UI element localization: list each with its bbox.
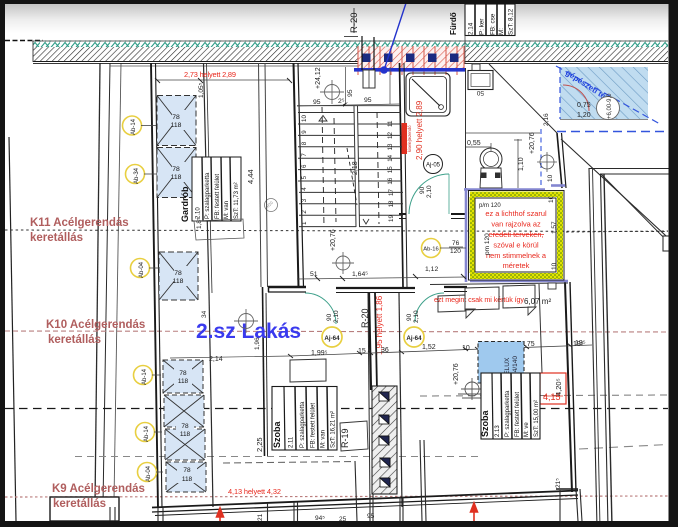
svg-text:4: 4 (301, 187, 308, 191)
svg-text:2,10: 2,10 (426, 185, 433, 198)
svg-text:90: 90 (406, 313, 413, 321)
svg-text:FB: festett felület: FB: festett felület (215, 174, 221, 219)
svg-text:Ab-34: Ab-34 (134, 167, 140, 184)
svg-text:FB: festett felület: FB: festett felület (515, 392, 521, 437)
svg-text:2.14: 2.14 (468, 22, 475, 35)
svg-text:Fürdő: Fürdő (449, 12, 458, 35)
svg-text:keretállás: keretállás (53, 498, 106, 510)
svg-text:Aj-64: Aj-64 (406, 335, 422, 342)
svg-text:34: 34 (201, 310, 208, 318)
svg-text:19⁵: 19⁵ (573, 341, 584, 348)
svg-text:+24,12: +24,12 (315, 67, 322, 89)
svg-text:1: 1 (301, 221, 308, 225)
svg-text:Szoba: Szoba (480, 410, 490, 437)
svg-text:keretállás: keretállás (48, 334, 101, 346)
svg-text:4,13 helyett 4,32: 4,13 helyett 4,32 (228, 487, 281, 496)
svg-text:2,73 helyett 2,89: 2,73 helyett 2,89 (184, 70, 236, 79)
svg-text:4,44: 4,44 (246, 169, 255, 184)
svg-text:118: 118 (173, 278, 184, 285)
svg-text:2,10: 2,10 (333, 310, 340, 323)
svg-text:Aj-05: Aj-05 (426, 163, 441, 169)
svg-text:1,05⁵: 1,05⁵ (198, 82, 205, 98)
svg-text:2.10: 2.10 (196, 207, 202, 219)
svg-text:18: 18 (388, 200, 395, 207)
svg-text:ez a lichthof szarul: ez a lichthof szarul (485, 209, 547, 218)
svg-text:11: 11 (387, 120, 394, 127)
svg-text:+20,76: +20,76 (529, 132, 536, 154)
svg-text:szóval e körül: szóval e körül (493, 241, 539, 250)
svg-text:2,90 helyett 2,89: 2,90 helyett 2,89 (415, 100, 424, 160)
svg-text:R-20: R-20 (349, 12, 360, 33)
svg-text:120: 120 (450, 248, 461, 255)
svg-text:p/m 120: p/m 120 (479, 203, 501, 209)
svg-text:2,16: 2,16 (543, 113, 550, 126)
svg-text:78: 78 (174, 270, 182, 277)
svg-text:2.11: 2.11 (289, 436, 295, 448)
svg-text:15: 15 (358, 348, 366, 355)
svg-text:SzT: 15,00 m²: SzT: 15,00 m² (534, 400, 540, 437)
svg-text:P: szalagparketta: P: szalagparketta (300, 401, 306, 448)
svg-text:6,07 m²: 6,07 m² (524, 297, 551, 306)
svg-text:90: 90 (326, 313, 333, 321)
svg-text:118: 118 (182, 476, 193, 483)
svg-text:90: 90 (419, 186, 426, 194)
svg-text:1,12: 1,12 (425, 266, 438, 273)
svg-text:10: 10 (547, 174, 554, 182)
svg-text:ezt megint csak mi kértük így: ezt megint csak mi kértük így (434, 295, 524, 304)
svg-text:12: 12 (387, 132, 394, 139)
svg-text:95: 95 (347, 89, 354, 97)
svg-text:118: 118 (171, 122, 182, 129)
svg-text:P: szalagparketta: P: szalagparketta (205, 172, 211, 219)
svg-text:SzT: 8,12: SzT: 8,12 (508, 8, 515, 35)
svg-text:1,64⁵: 1,64⁵ (352, 271, 368, 278)
svg-text:Ab-14: Ab-14 (142, 368, 148, 385)
svg-text:8: 8 (301, 141, 308, 145)
svg-text:M: van: M: van (321, 430, 327, 448)
svg-text:Aj-64: Aj-64 (324, 335, 340, 342)
svg-text:2⁵: 2⁵ (338, 98, 345, 105)
svg-text:36: 36 (381, 347, 389, 354)
svg-text:K10 Acélgerendás: K10 Acélgerendás (46, 319, 145, 331)
svg-text:50: 50 (476, 89, 484, 96)
svg-text:Ab-04: Ab-04 (139, 261, 145, 278)
svg-text:+20,76: +20,76 (330, 229, 337, 251)
svg-text:Ab-04: Ab-04 (146, 465, 152, 482)
svg-text:1,8⁵: 1,8⁵ (196, 217, 203, 229)
svg-text:15: 15 (387, 166, 394, 173)
svg-text:M:: M: (498, 28, 505, 35)
svg-text:R-19: R-19 (340, 428, 350, 448)
svg-text:3: 3 (301, 198, 308, 202)
svg-text:2.13: 2.13 (495, 425, 501, 437)
svg-text:118: 118 (171, 174, 182, 181)
svg-text:1,99⁵: 1,99⁵ (311, 350, 328, 357)
svg-text:78: 78 (172, 114, 180, 121)
svg-text:P: szalagparketta: P: szalagparketta (505, 390, 511, 437)
svg-text:pm 120: pm 120 (484, 233, 491, 255)
svg-text:78: 78 (181, 423, 189, 430)
svg-text:K9 Acélgerendás: K9 Acélgerendás (52, 483, 145, 495)
svg-text:51: 51 (310, 271, 318, 278)
svg-text:méretek: méretek (503, 261, 530, 270)
svg-text:14: 14 (387, 154, 394, 161)
svg-text:95: 95 (313, 99, 321, 106)
svg-text:M: ve: M: ve (524, 422, 530, 437)
svg-text:SzT: 16,21 m²: SzT: 16,21 m² (331, 411, 337, 448)
svg-text:0,55: 0,55 (467, 140, 481, 147)
svg-text:Ab-14: Ab-14 (144, 425, 150, 442)
svg-text:2.sz Lakás: 2.sz Lakás (196, 320, 301, 343)
svg-text:10: 10 (301, 115, 308, 122)
svg-text:2,25: 2,25 (255, 437, 264, 452)
svg-text:+20,76: +20,76 (453, 363, 460, 385)
svg-text:1,20: 1,20 (577, 112, 591, 119)
svg-text:21⁵: 21⁵ (555, 478, 562, 488)
svg-text:78: 78 (183, 467, 191, 474)
svg-text:Ab-16: Ab-16 (423, 247, 438, 253)
svg-text:Gardrób: Gardrób (180, 186, 190, 222)
svg-text:van rajzolva az: van rajzolva az (491, 220, 541, 229)
svg-text:2,18: 2,18 (352, 161, 359, 175)
svg-text:SzT: 11,73 m²: SzT: 11,73 m² (234, 182, 240, 219)
svg-text:1,52: 1,52 (422, 344, 436, 351)
svg-text:Ab-14: Ab-14 (131, 118, 137, 135)
svg-text:nem stimmelnek a: nem stimmelnek a (486, 251, 547, 260)
svg-text:1,10: 1,10 (518, 157, 525, 171)
svg-text:118: 118 (178, 378, 189, 385)
svg-text:P: ker: P: ker (479, 19, 486, 35)
svg-text:10: 10 (462, 345, 470, 352)
svg-text:+6,00-9,0: +6,00-9,0 (607, 93, 613, 119)
svg-text:Szoba: Szoba (272, 421, 282, 448)
svg-text:1,96: 1,96 (254, 337, 261, 350)
svg-text:10: 10 (551, 262, 558, 270)
svg-text:21: 21 (257, 513, 264, 521)
svg-text:FB: festett felület: FB: festett felület (311, 403, 317, 448)
svg-text:2: 2 (301, 210, 308, 214)
svg-text:6: 6 (301, 164, 308, 168)
svg-text:78: 78 (179, 370, 187, 377)
svg-text:17: 17 (388, 189, 395, 196)
svg-text:5: 5 (301, 175, 308, 179)
svg-text:94⁵: 94⁵ (315, 515, 325, 522)
svg-text:13: 13 (387, 143, 394, 150)
svg-text:95: 95 (367, 513, 375, 520)
svg-text:2,10: 2,10 (413, 310, 420, 323)
svg-text:78: 78 (172, 166, 180, 173)
svg-text:4,20⁵: 4,20⁵ (554, 378, 563, 396)
svg-text:FB: cse: FB: cse (490, 13, 497, 35)
svg-text:76: 76 (452, 240, 460, 247)
svg-text:16: 16 (387, 177, 394, 184)
svg-text:kiselejtezendő: kiselejtezendő (407, 125, 412, 152)
svg-text:9: 9 (301, 130, 308, 134)
svg-text:19: 19 (388, 215, 395, 222)
svg-text:0,75: 0,75 (577, 102, 591, 109)
svg-text:M: van: M: van (224, 201, 230, 219)
svg-text:K11 Acélgerendás: K11 Acélgerendás (30, 217, 129, 229)
svg-text:118: 118 (180, 431, 191, 438)
svg-text:1,57: 1,57 (551, 221, 558, 234)
svg-text:7: 7 (301, 153, 308, 157)
svg-text:95: 95 (364, 97, 372, 104)
svg-text:keretállás: keretállás (30, 232, 83, 244)
